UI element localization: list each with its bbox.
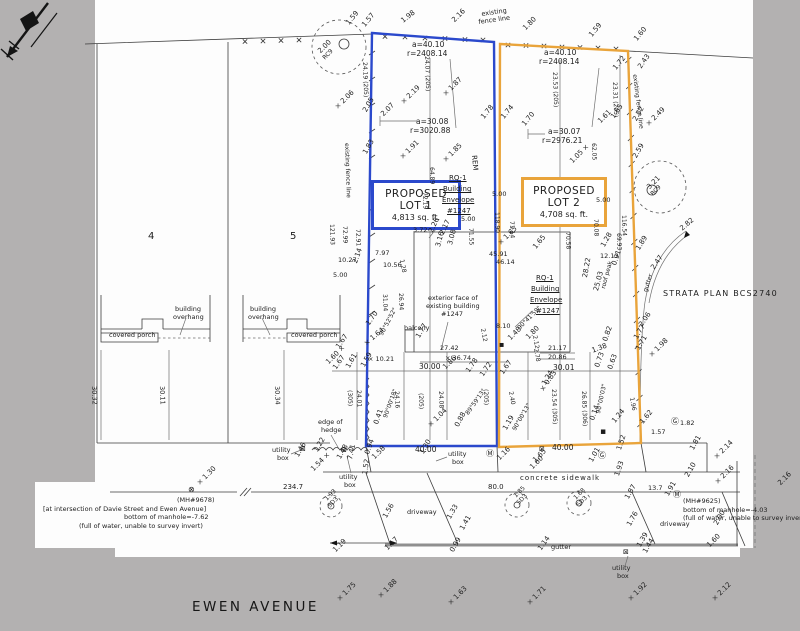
utility-box-symbol: ⊠ (539, 446, 545, 453)
dim-label: 45.91 (489, 251, 508, 258)
lot2-area: 4,708 sq. ft. (540, 210, 588, 219)
dim-label: exterior face of (428, 295, 478, 302)
curve-data: a=30.08 (416, 118, 448, 126)
manhole-note: (MH#9678) (177, 497, 215, 504)
dim-label: 7.97 (375, 250, 389, 257)
dim-label: 24.19 (205) (361, 62, 368, 97)
dim-label: 5.00 (333, 272, 347, 279)
utility-box-label: utility (272, 447, 290, 454)
porch-label: covered porch (291, 332, 337, 339)
overhang-label: overhang (248, 314, 279, 321)
dim-label: (205) (417, 393, 424, 409)
dim-label: 72.91 (354, 229, 361, 246)
dim-label: 27.42 (440, 345, 459, 352)
dim-label: 3.72 (413, 227, 427, 234)
utility-box-label: box (277, 455, 289, 462)
manhole-note: [at intersection of Davie Street and Ewe… (43, 506, 206, 513)
utility-box-label: box (617, 573, 629, 580)
manhole-note: (MH#9625) (683, 498, 721, 505)
dim-label: 30.11 (159, 386, 166, 405)
dim-label: 23.54 (305) (550, 389, 557, 424)
dim-label: 26.85 (306) (580, 391, 587, 426)
manhole-note: bottom of manhole=-4.03 (683, 507, 768, 514)
fence-label: existing fence line (343, 143, 351, 198)
dim-label: 2.12 (479, 328, 487, 342)
dim-label: 31.04 (381, 294, 388, 311)
dim-label: 30.34 (274, 386, 281, 405)
dim-label: 1.28 (398, 259, 406, 273)
envelope-label: Building (443, 186, 471, 193)
dim-label: existing building (426, 303, 480, 310)
utility-box-symbol: ⊠ (623, 549, 629, 556)
dim-label: 64.89 (428, 167, 435, 184)
envelope-label: Envelope (530, 297, 562, 304)
overhang-label: overhang (173, 314, 204, 321)
utility-box-label: box (344, 482, 356, 489)
envelope-label: #1247 (447, 208, 471, 215)
curve-data: r=2408.14 (539, 58, 579, 66)
dim-label: 24.07 (205) (423, 56, 430, 91)
gutter-label: gutter (551, 544, 571, 551)
lot-number: 5 (290, 232, 296, 242)
dim-label: 5.00 (492, 191, 506, 198)
dim-label: 30.32 (91, 386, 98, 405)
envelope-label: RQ-1 (449, 175, 467, 182)
hedge-label: edge of (318, 419, 343, 426)
dim-label: 72.19 (421, 192, 428, 209)
dim-label: 30.01 (553, 364, 574, 372)
dim-label: 5.00 (596, 197, 610, 204)
dim-label: 13.7 (648, 485, 662, 492)
dim-label: 24.01 (355, 390, 362, 407)
north-arrow-icon (1, 3, 57, 60)
manhole-note: (full of water, unable to survey invert) (683, 515, 800, 522)
overhang-label: building (175, 306, 201, 313)
dim-label: 118.90 (493, 212, 500, 233)
dim-label: #1247 (441, 311, 463, 318)
utility-box-symbol: ⊠ (300, 446, 306, 453)
dim-label: 2.40 (507, 391, 515, 405)
curve-data: a=40.10 (412, 41, 444, 49)
dim-label: 71.55 (467, 228, 474, 245)
utility-box-symbol: ⊠ (341, 447, 347, 454)
curve-data: r=3020.88 (410, 127, 450, 135)
utility-box-label: utility (339, 474, 357, 481)
manhole-note: (full of water, unable to survey invert) (79, 523, 203, 530)
envelope-label: Building (531, 286, 559, 293)
dim-label: 121.93 (328, 224, 335, 245)
utility-box-label: utility (612, 565, 630, 572)
dim-label: (305) (346, 390, 353, 406)
symbol: Ⓖ (671, 418, 679, 426)
strata-plan-label: STRATA PLAN BCS2740 (663, 289, 778, 298)
dim-label: 5.00 (461, 216, 475, 223)
plan-linework (0, 0, 800, 631)
dim-label: 234.7 (283, 484, 303, 491)
dim-label: 26.94 (397, 293, 404, 310)
survey-site-plan: PROPOSED LOT 1 4,813 sq. ft. PROPOSED LO… (0, 0, 800, 631)
lot-number: 4 (148, 232, 154, 242)
dim-label: 30.00 (419, 363, 440, 371)
symbol: Ⓜ (486, 450, 494, 458)
curve-data: a=30.07 (548, 128, 580, 136)
curve-data: a=40.10 (544, 49, 576, 57)
lot2-number: LOT 2 (548, 197, 581, 209)
driveway-label: driveway (407, 509, 437, 516)
utility-box-label: utility (448, 451, 466, 458)
symbol: Ⓜ (673, 491, 681, 499)
dim-label: 62.05 (590, 143, 597, 160)
porch-label: covered porch (109, 332, 155, 339)
lot2-title: PROPOSED (533, 185, 595, 197)
utility-box-label: box (452, 459, 464, 466)
symbol: Ⓖ (598, 452, 606, 460)
dim-label: 80.0 (488, 484, 504, 491)
lot1-boundary (366, 33, 497, 446)
symbol: ▪ (499, 341, 504, 349)
dim-label: 1.82 (680, 420, 694, 427)
sidewalk-label: concrete sidewalk (520, 475, 600, 482)
envelope-label: RQ-1 (536, 275, 554, 282)
lot1-title: PROPOSED (385, 188, 447, 200)
dim-label: 70.58 (564, 232, 571, 249)
dim-label: 40.00 (552, 444, 573, 452)
street-name: EWEN AVENUE (192, 599, 319, 615)
dim-label: 8.10 (496, 323, 510, 330)
dim-label: 46.14 (496, 259, 515, 266)
dim-label: REM (470, 155, 478, 171)
symbol: ⊗ (188, 486, 195, 494)
dim-label: 40.00 (415, 446, 436, 454)
curve-data: r=2976.21 (542, 137, 582, 145)
overhang-label: building (250, 306, 276, 313)
dim-label: 23.53 (205) (551, 72, 558, 107)
dim-label: 2.78 (532, 348, 540, 362)
dim-label: 1.96 (628, 397, 636, 411)
manhole-note: bottom of manhole=-7.62 (124, 514, 209, 521)
dim-label: 21.17 (548, 345, 567, 352)
dim-label: 72.99 (341, 226, 348, 243)
dim-label: 1.57 (651, 429, 665, 436)
dim-label: 70.08 (592, 219, 599, 236)
dim-label: 116.54 (620, 215, 627, 236)
utility-box-symbol: ▪ (600, 428, 606, 437)
envelope-label: Envelope (442, 197, 474, 204)
dim-label: 20.86 (548, 354, 567, 361)
hedge-label: hedge (321, 427, 341, 434)
